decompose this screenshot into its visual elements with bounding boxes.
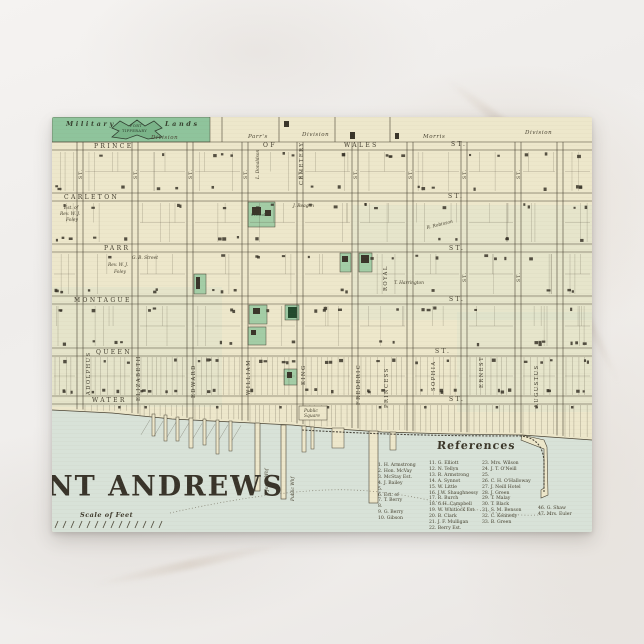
building bbox=[206, 358, 210, 361]
wharf bbox=[203, 419, 206, 445]
building bbox=[504, 257, 506, 260]
street-ernest: ERNEST bbox=[479, 356, 485, 388]
building bbox=[325, 361, 329, 364]
building bbox=[571, 406, 574, 409]
building bbox=[523, 203, 525, 206]
building bbox=[583, 342, 587, 345]
building bbox=[279, 406, 282, 409]
building bbox=[229, 342, 232, 345]
street-edward: EDWARD bbox=[191, 364, 197, 398]
building bbox=[212, 289, 214, 291]
building bbox=[498, 389, 500, 392]
building bbox=[342, 153, 345, 156]
building bbox=[63, 343, 66, 346]
green-block bbox=[249, 305, 267, 324]
foley-label: Foley bbox=[65, 218, 78, 223]
wharf bbox=[152, 414, 155, 436]
street-queen: QUEEN bbox=[96, 349, 132, 356]
building bbox=[257, 256, 260, 259]
building bbox=[579, 185, 583, 188]
building bbox=[207, 390, 210, 393]
building bbox=[230, 308, 233, 311]
building bbox=[148, 390, 151, 393]
building bbox=[432, 289, 435, 292]
building bbox=[415, 361, 418, 364]
building bbox=[538, 343, 541, 346]
references-heading: References bbox=[437, 439, 516, 452]
building bbox=[259, 360, 262, 363]
st-marker: ST. bbox=[188, 169, 194, 179]
building bbox=[576, 185, 579, 188]
street-carleton: CARLETON bbox=[64, 194, 119, 201]
public-wharf-label: Public Whf bbox=[291, 475, 296, 502]
street-st: ST. bbox=[449, 245, 465, 252]
building bbox=[157, 187, 160, 190]
building bbox=[473, 188, 475, 191]
building bbox=[370, 257, 373, 260]
building bbox=[120, 341, 123, 343]
building bbox=[432, 187, 435, 189]
building bbox=[396, 308, 399, 310]
street-parr: PARR bbox=[104, 245, 130, 252]
building bbox=[436, 256, 439, 259]
green-block bbox=[340, 253, 351, 272]
building bbox=[393, 341, 395, 344]
building bbox=[338, 185, 341, 188]
building bbox=[177, 204, 180, 207]
building bbox=[62, 237, 65, 239]
building bbox=[196, 277, 200, 289]
building bbox=[342, 256, 348, 262]
building bbox=[213, 154, 217, 157]
wharf bbox=[216, 420, 219, 454]
building bbox=[540, 361, 543, 363]
street-frederic: FREDERIC bbox=[356, 364, 362, 405]
building bbox=[443, 206, 447, 209]
building bbox=[256, 206, 259, 208]
building bbox=[99, 155, 102, 157]
building bbox=[108, 256, 111, 259]
street-st: ST. bbox=[449, 296, 465, 303]
building bbox=[92, 309, 96, 312]
building bbox=[55, 290, 58, 293]
building bbox=[311, 186, 314, 188]
division-label: Division bbox=[150, 135, 178, 141]
building bbox=[237, 236, 239, 238]
building bbox=[379, 406, 382, 409]
building bbox=[230, 154, 233, 156]
street-wales: WALES bbox=[344, 142, 379, 149]
building bbox=[292, 341, 295, 344]
building bbox=[266, 309, 269, 312]
building bbox=[374, 207, 378, 209]
building bbox=[447, 360, 449, 362]
building bbox=[118, 406, 121, 409]
building bbox=[88, 289, 90, 291]
building bbox=[454, 389, 457, 392]
building bbox=[162, 153, 164, 156]
building bbox=[156, 288, 158, 291]
building bbox=[438, 238, 440, 240]
public-square-label: Square bbox=[304, 414, 320, 419]
building bbox=[308, 256, 310, 258]
building bbox=[534, 341, 538, 344]
building bbox=[585, 206, 588, 209]
street-royal: ROYAL bbox=[383, 265, 389, 291]
paper-tint bbox=[352, 205, 592, 320]
building bbox=[174, 359, 177, 362]
building bbox=[529, 257, 533, 260]
building bbox=[221, 254, 225, 257]
building bbox=[142, 389, 146, 391]
fort-label-line2: TIPPERARY bbox=[122, 129, 147, 133]
building bbox=[223, 207, 226, 209]
building bbox=[584, 359, 586, 362]
building bbox=[525, 153, 528, 156]
building bbox=[477, 343, 479, 346]
marble-vein bbox=[91, 539, 289, 589]
building bbox=[144, 406, 147, 409]
reagan-label: J. Reagan bbox=[292, 204, 314, 209]
building bbox=[415, 255, 418, 257]
building bbox=[341, 289, 344, 292]
references-column-4: 46. G. Shaw47. Mrs. Euler bbox=[538, 506, 572, 518]
building bbox=[524, 361, 528, 363]
st-marker: ST. bbox=[298, 169, 304, 179]
building bbox=[324, 307, 327, 310]
building bbox=[222, 237, 226, 240]
building bbox=[474, 309, 477, 311]
building bbox=[424, 406, 427, 409]
street-william: WILLIAM bbox=[246, 359, 252, 395]
building bbox=[420, 389, 422, 391]
references-column-3: 23. Mrs. Wilson24. J. T. O'Neill25.26. C… bbox=[482, 461, 531, 526]
morris-division-label: Division bbox=[524, 130, 552, 136]
foley-label: Rev. W. J. bbox=[59, 212, 80, 217]
building bbox=[287, 372, 292, 378]
building bbox=[153, 291, 156, 294]
building bbox=[577, 155, 581, 158]
building bbox=[580, 239, 583, 242]
building bbox=[484, 254, 488, 257]
building bbox=[528, 205, 530, 208]
building bbox=[104, 360, 106, 362]
building bbox=[497, 155, 500, 157]
st-marker: ST. bbox=[133, 169, 139, 179]
street-st: ST. bbox=[449, 396, 465, 403]
building bbox=[153, 307, 156, 309]
building bbox=[329, 361, 332, 364]
building bbox=[376, 360, 380, 362]
building bbox=[69, 237, 73, 240]
wharf bbox=[229, 421, 232, 451]
morris-label: Morris bbox=[422, 134, 445, 140]
building bbox=[215, 359, 218, 362]
est-of-label: Est. of bbox=[63, 206, 80, 211]
building bbox=[286, 361, 288, 364]
building bbox=[576, 390, 580, 393]
st-marker: ST. bbox=[462, 169, 468, 179]
building bbox=[508, 388, 511, 391]
st-marker: ST. bbox=[78, 169, 84, 179]
marble-table-surface: Military Lands FORT TIPPERARY Division P… bbox=[0, 0, 644, 644]
building bbox=[547, 389, 550, 392]
street-montague: MONTAGUE bbox=[74, 297, 132, 304]
parrs-label: Parr's bbox=[247, 134, 268, 140]
street-water: WATER bbox=[92, 397, 127, 404]
building bbox=[265, 210, 271, 216]
st-marker: ST. bbox=[516, 169, 522, 179]
building bbox=[494, 257, 497, 260]
building bbox=[255, 237, 258, 240]
building bbox=[165, 390, 167, 393]
building bbox=[389, 155, 392, 157]
fort-label-line1: FORT bbox=[130, 124, 142, 128]
building bbox=[547, 289, 551, 291]
street-elizabeth: ELIZABETH bbox=[136, 355, 142, 401]
school-label: School bbox=[251, 213, 266, 217]
building bbox=[379, 340, 382, 342]
building bbox=[57, 188, 61, 190]
building bbox=[127, 362, 130, 364]
building bbox=[469, 154, 471, 156]
building bbox=[253, 308, 260, 314]
building bbox=[251, 330, 256, 335]
reference-entry: 2. Hon. McVay bbox=[378, 469, 416, 475]
building bbox=[198, 360, 200, 362]
street-augustus: AUGUSTUS bbox=[534, 364, 540, 409]
building bbox=[283, 152, 285, 155]
reference-entry: 33. B. Green bbox=[482, 520, 531, 526]
building bbox=[427, 309, 431, 311]
building bbox=[92, 391, 94, 394]
reference-entry: 47. Mrs. Euler bbox=[538, 512, 572, 518]
building bbox=[345, 290, 347, 293]
reference-entry: 26. C. H. O'Halloway bbox=[482, 479, 531, 485]
building bbox=[401, 154, 405, 157]
building bbox=[116, 390, 119, 393]
building bbox=[282, 255, 285, 257]
building bbox=[59, 309, 63, 311]
wharf bbox=[332, 428, 344, 448]
wharf bbox=[176, 417, 179, 441]
street-st: ST. bbox=[448, 193, 464, 200]
building bbox=[441, 391, 444, 394]
building bbox=[264, 360, 268, 362]
building bbox=[124, 237, 127, 240]
building bbox=[572, 290, 574, 293]
church-building bbox=[288, 307, 297, 318]
street-st: ST. bbox=[435, 348, 451, 355]
street-of: OF bbox=[263, 142, 277, 149]
street-adolphus: ADOLPHUS bbox=[86, 351, 92, 396]
building bbox=[71, 391, 73, 394]
building bbox=[271, 204, 274, 206]
building bbox=[496, 406, 499, 409]
st-marker: ST. bbox=[462, 272, 468, 282]
building bbox=[292, 154, 295, 156]
building bbox=[179, 205, 181, 208]
building bbox=[361, 255, 369, 263]
building bbox=[587, 361, 589, 364]
building bbox=[314, 388, 317, 391]
building bbox=[334, 205, 338, 208]
building bbox=[571, 342, 573, 345]
green-block bbox=[248, 327, 266, 345]
building bbox=[63, 389, 66, 391]
parrs-division-label: Division bbox=[301, 132, 329, 138]
building bbox=[542, 341, 546, 343]
building bbox=[91, 207, 94, 209]
st-marker: ST. bbox=[516, 272, 522, 282]
military-label: Military bbox=[65, 120, 116, 128]
building bbox=[282, 361, 286, 363]
building bbox=[421, 187, 425, 190]
street-prince: PRINCE bbox=[94, 143, 134, 150]
building bbox=[218, 237, 222, 240]
building bbox=[63, 360, 66, 363]
building bbox=[314, 309, 317, 312]
building bbox=[284, 121, 289, 127]
building bbox=[292, 360, 296, 362]
building bbox=[216, 406, 219, 409]
street-st: ST. bbox=[451, 141, 467, 148]
building bbox=[56, 239, 58, 242]
building bbox=[583, 390, 585, 392]
foley-label: Rev. W. J. bbox=[107, 263, 128, 268]
building bbox=[545, 152, 548, 155]
building bbox=[392, 359, 395, 362]
st-marker: ST. bbox=[243, 169, 249, 179]
st-marker: ST. bbox=[408, 169, 414, 179]
building bbox=[339, 359, 343, 362]
lands-label: Lands bbox=[164, 120, 200, 128]
building bbox=[338, 309, 342, 311]
references-column-2: 11. G. Elliott12. N. Tellyn13. R. Armstr… bbox=[429, 461, 478, 532]
building bbox=[421, 308, 424, 311]
building bbox=[368, 391, 371, 393]
building bbox=[221, 290, 224, 293]
building bbox=[575, 341, 578, 344]
building bbox=[395, 133, 399, 139]
building bbox=[418, 186, 420, 188]
scale-of-feet-label: Scale of Feet bbox=[80, 511, 133, 519]
street-princess: PRINCESS bbox=[384, 367, 390, 408]
building bbox=[392, 257, 394, 259]
building bbox=[221, 153, 223, 155]
building bbox=[93, 340, 95, 342]
building bbox=[174, 390, 177, 392]
street-sophia: SOPHIA bbox=[431, 360, 437, 391]
building bbox=[102, 389, 105, 392]
building bbox=[350, 132, 355, 139]
gb-street-label: G. B. Street bbox=[132, 256, 158, 261]
building bbox=[492, 359, 496, 362]
building bbox=[234, 289, 237, 292]
building bbox=[213, 389, 216, 392]
map-title: NT ANDREWS bbox=[52, 470, 284, 502]
building bbox=[567, 289, 571, 291]
building bbox=[365, 203, 367, 206]
building bbox=[570, 308, 572, 311]
building bbox=[212, 186, 214, 189]
building bbox=[175, 187, 178, 189]
building bbox=[60, 291, 63, 293]
references-column-1: 1. H. Armstrong2. Hon. McVay3. McStay Es… bbox=[378, 463, 416, 522]
building bbox=[538, 341, 541, 343]
building bbox=[386, 154, 389, 156]
building bbox=[505, 238, 509, 240]
postcard-map-saint-andrews: Military Lands FORT TIPPERARY Division P… bbox=[52, 117, 592, 532]
donaldson-label: L. Donaldson bbox=[256, 150, 261, 180]
reference-entry: 10. Gibson bbox=[378, 516, 416, 522]
building bbox=[544, 188, 547, 191]
harrington-label: T. Harrington bbox=[394, 281, 424, 286]
building bbox=[331, 390, 334, 393]
reference-entry: 3. McStay Est. bbox=[378, 475, 416, 481]
building bbox=[305, 389, 308, 391]
building bbox=[114, 341, 117, 344]
street-king: KING bbox=[301, 364, 307, 385]
wharf bbox=[164, 415, 167, 441]
building bbox=[550, 359, 553, 361]
building bbox=[121, 185, 124, 188]
st-marker: ST. bbox=[353, 169, 359, 179]
building bbox=[148, 309, 151, 312]
market-wharf bbox=[369, 431, 378, 503]
foley-label: Foley bbox=[113, 270, 126, 275]
building bbox=[93, 237, 96, 239]
building bbox=[220, 341, 222, 344]
building bbox=[455, 238, 457, 241]
building bbox=[574, 207, 576, 209]
building bbox=[501, 390, 504, 393]
wharf bbox=[189, 418, 193, 448]
building bbox=[433, 307, 436, 310]
building bbox=[55, 185, 58, 187]
reference-entry: 22. Berry Est. bbox=[429, 526, 478, 532]
